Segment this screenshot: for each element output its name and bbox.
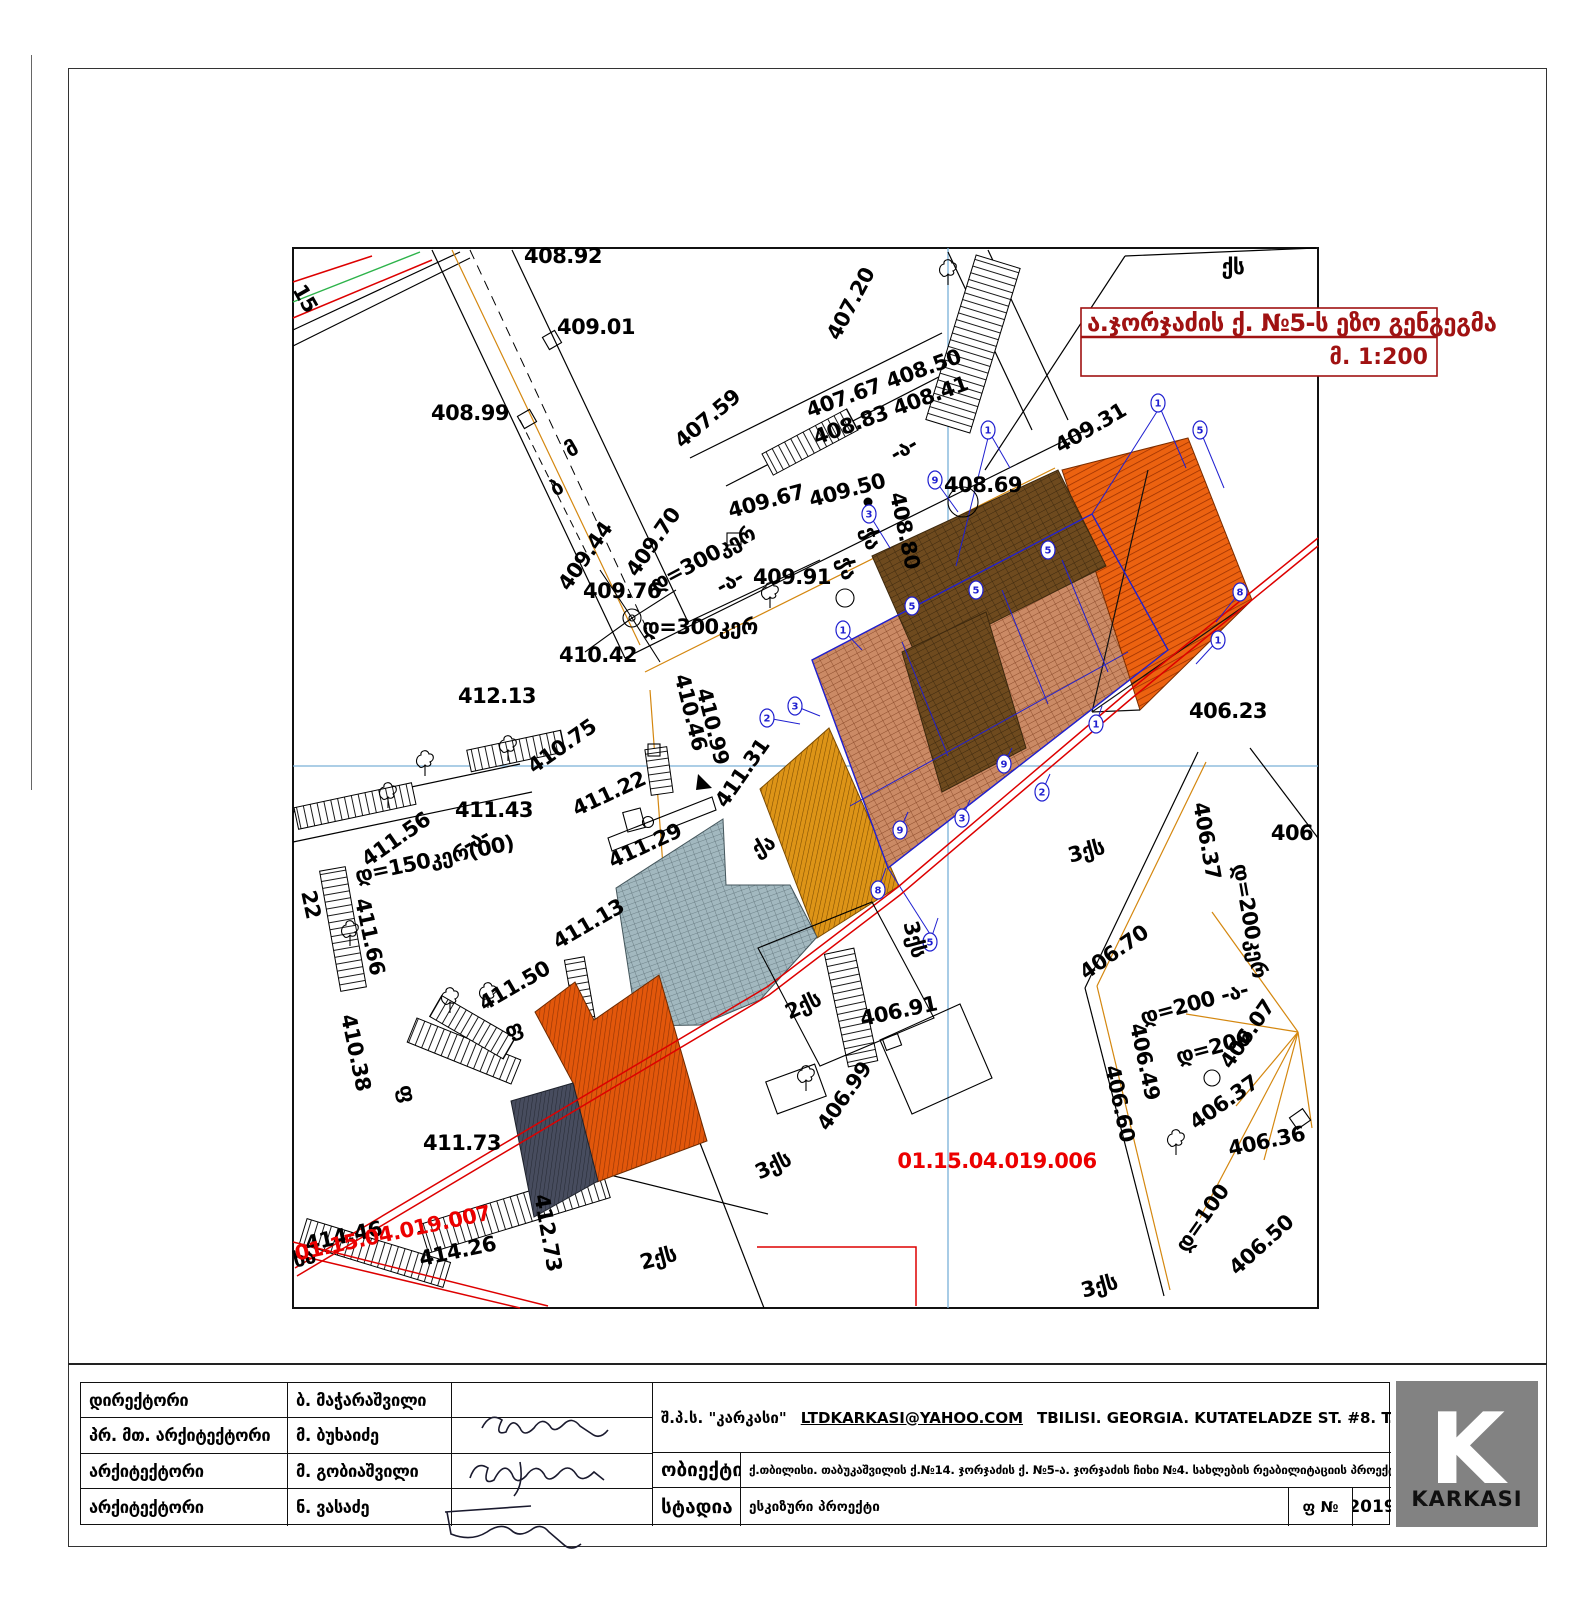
axis-number: 1 [1215,636,1222,647]
role-architect2-label: არქიტექტორი [81,1489,288,1526]
map-label: 408.92 [524,244,602,268]
parcel-code-label: 01.15.04.019.006 [897,1149,1096,1173]
drawing-scale: მ. 1:200 [1329,345,1428,370]
title-block: დირექტორი ბ. მაჭარაშვილი პრ. მთ. არქიტექ… [80,1382,1390,1525]
object-text: ქ.თბილისი. თაბუკაშვილის ქ.№14. ჯორჯაძის … [741,1453,1391,1488]
architect2-name: ნ. ვასაძე [288,1489,452,1526]
axis-number: 9 [1001,760,1008,771]
axis-number: 1 [1093,720,1100,731]
map-label: 411.73 [423,1131,501,1155]
map-label: 408.99 [431,401,509,425]
axis-number: 3 [792,702,799,713]
map-label: 409.01 [557,315,635,339]
axis-number: 2 [1039,788,1046,799]
signature-cell-3 [452,1454,653,1489]
axis-number: 3 [866,510,873,521]
map-label: 406 [1271,821,1313,845]
role-director-label: დირექტორი [81,1383,288,1418]
signature-cell-2 [452,1418,653,1454]
role-architect1-label: არქიტექტორი [81,1454,288,1489]
axis-number: 8 [875,886,882,897]
karkasi-logo: K KARKASI [1396,1381,1538,1527]
axis-number: 9 [897,826,904,837]
map-label: 411.43 [455,798,533,822]
axis-number: 1 [840,626,847,637]
map-label: 410.42 [559,643,637,667]
map-label: 409.91 [753,565,831,589]
company-row: შ.პ.ს. "კარკასი" LTDKARKASI@YAHOO.COM TB… [653,1383,1391,1453]
company-email[interactable]: LTDKARKASI@YAHOO.COM [801,1409,1023,1427]
year-value: 2019 [1353,1488,1391,1526]
company-name: შ.პ.ს. "კარკასი" [661,1409,787,1427]
axis-number: 2 [764,714,771,725]
map-label: დ=300კერ [642,615,758,639]
axis-number: 5 [1197,426,1204,437]
stage-text: ესკიზური პროექტი [741,1488,1289,1526]
map-label: 412.13 [458,684,536,708]
map-label: 406.23 [1189,699,1267,723]
company-address: TBILISI. GEORGIA. KUTATELADZE ST. #8. T.… [1037,1409,1391,1427]
site-plan-map: 15193813218953921555 408.92409.01408.991… [0,0,1588,1614]
axis-number: 3 [959,814,966,825]
drawing-sheet: 15193813218953921555 408.92409.01408.991… [0,0,1588,1614]
map-label: ქს [1222,255,1245,279]
axis-number: 1 [1155,399,1162,410]
drawing-title-box: ა.ჯორჯაძის ქ. №5-ს ეზო გენგეგმა მ. 1:200 [1081,308,1497,376]
signature-cell-1 [452,1383,653,1418]
chief-architect-name: მ. ბუხაიძე [288,1418,452,1454]
director-name: ბ. მაჭარაშვილი [288,1383,452,1418]
axis-number: 5 [973,586,980,597]
drawing-title: ა.ჯორჯაძის ქ. №5-ს ეზო გენგეგმა [1087,309,1497,337]
axis-number: 5 [1045,546,1052,557]
signature-cell-4 [452,1489,653,1526]
map-label: 408.69 [944,473,1022,497]
stage-label: სტადია [653,1488,741,1526]
axis-number: 1 [985,426,992,437]
axis-number: 5 [909,602,916,613]
axis-number: 9 [932,476,939,487]
axis-number: 8 [1237,588,1244,599]
role-chief-architect-label: პრ. მთ. არქიტექტორი [81,1418,288,1454]
sheet-number-label: ფ № [1289,1488,1353,1526]
logo-text: KARKASI [1396,1487,1538,1511]
architect1-name: მ. გობიაშვილი [288,1454,452,1489]
object-label: ობიექტი [653,1453,741,1488]
map-label: 409.76 [583,579,661,603]
